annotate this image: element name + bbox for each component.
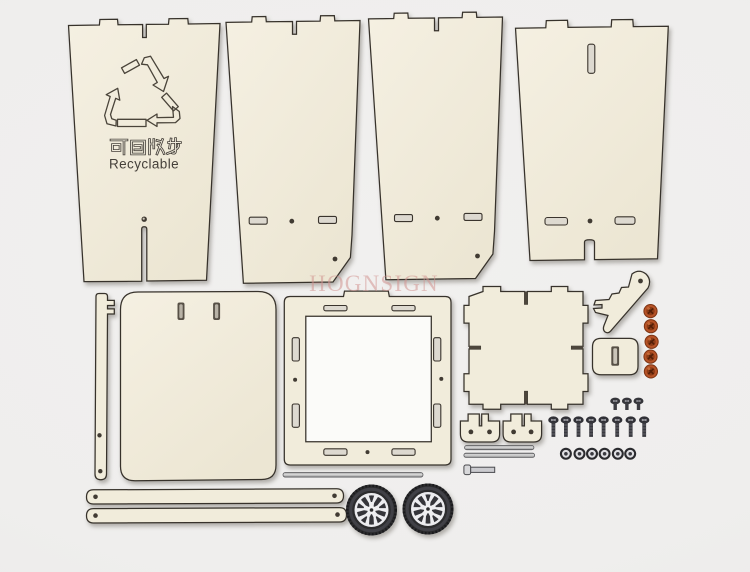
svg-text:HOGNSIGN: HOGNSIGN <box>309 271 439 296</box>
svg-text:Recyclable: Recyclable <box>109 157 179 172</box>
